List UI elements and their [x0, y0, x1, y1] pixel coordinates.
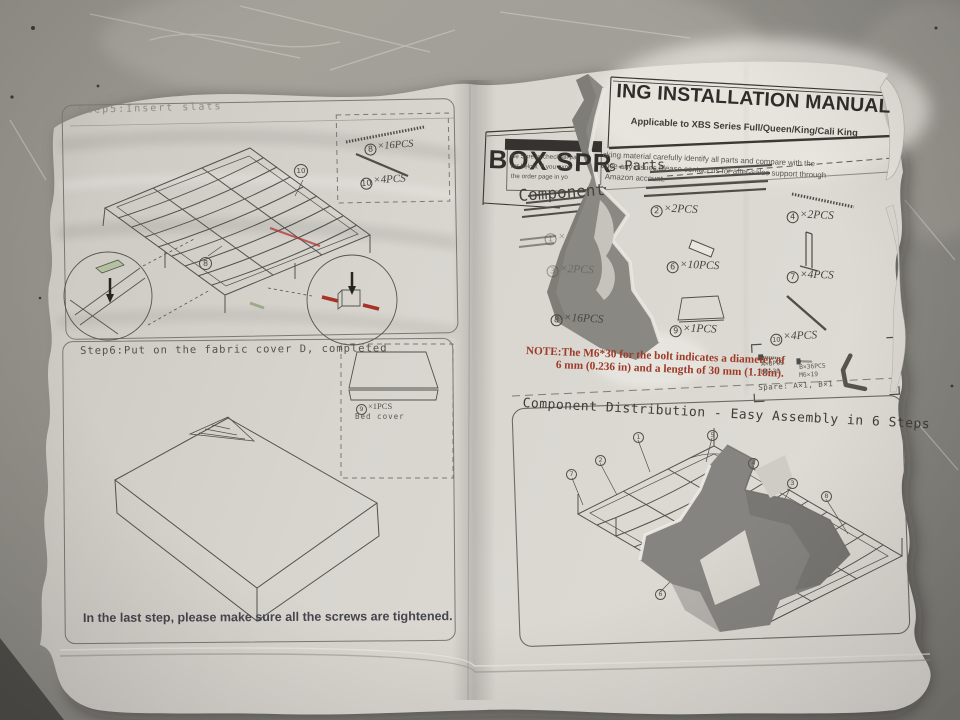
- part-label-10: 10×4PCS: [770, 330, 817, 346]
- circled-number: 7: [787, 271, 799, 283]
- hardware-a-size: M6×30: [761, 369, 780, 376]
- circled-number: 10: [360, 177, 373, 190]
- circled-number: 9: [670, 325, 682, 337]
- circled-number: 10: [770, 334, 782, 346]
- components-heading-right: s-Parts: [608, 159, 665, 174]
- assembly-callout-1: 1: [633, 432, 644, 443]
- part-label-6: 6×10PCS: [666, 259, 719, 275]
- step6-footer-note: In the last step, please make sure all t…: [83, 610, 453, 624]
- part-label-7: 7×4PCS: [787, 269, 834, 285]
- photo-of-installation-manual: Step5:Insert slats 8×16PCS 10×4PCS 10 8 …: [0, 0, 960, 720]
- circled-number: 4: [786, 211, 799, 224]
- assembly-callout-4: 4: [748, 458, 759, 469]
- assembly-callout-6: 6: [655, 589, 666, 600]
- part-qty: ×2PCS: [559, 263, 594, 277]
- circled-number: 8: [550, 314, 563, 327]
- part-qty: ×1PCS: [683, 322, 717, 335]
- assembly-callout-8: 8: [821, 491, 832, 502]
- cover-part-name: Bed cover: [355, 413, 405, 421]
- circled-number: 6: [666, 261, 679, 274]
- part-qty: ×4PCS: [783, 329, 817, 342]
- part-qty: ×16PCS: [377, 139, 414, 153]
- part-qty: ×10PCS: [680, 259, 720, 273]
- circled-number: 3: [546, 265, 559, 278]
- check-reminder-line-1: Be Sure to check all pa: [511, 154, 577, 162]
- circled-number: 2: [650, 205, 663, 218]
- hardware-a-label: A×8PCS: [761, 361, 784, 368]
- check-reminder-line-3: the order page in yo: [511, 174, 568, 181]
- circled-number: 8: [364, 143, 377, 156]
- part-label-2: 2×2PCS: [650, 203, 698, 219]
- part-qty: ×1PCS: [368, 401, 392, 411]
- part-qty: ×: [557, 231, 565, 243]
- assembly-callout-5: 5: [707, 430, 718, 441]
- assembly-callout-2: 2: [595, 455, 606, 466]
- part-qty: ×4PCS: [373, 173, 406, 187]
- step5-part-label-rod-b: 10×4PCS: [360, 174, 406, 190]
- part-qty: ×2PCS: [800, 209, 834, 222]
- part-qty: ×4PCS: [800, 268, 834, 281]
- part-label-8: 8×16PCS: [550, 312, 603, 329]
- step6-heading: Step6:Put on the fabric cover D, complet…: [80, 343, 388, 356]
- assembly-callout-3: 3: [787, 478, 798, 489]
- hardware-b-size: M6×19: [799, 372, 818, 379]
- frame-callout-8: 8: [199, 257, 212, 270]
- check-reminder-line-2: list below. If you expe: [511, 164, 572, 171]
- part-label-9: 9×1PCS: [670, 323, 717, 339]
- part-label-1: 1×: [544, 231, 565, 246]
- part-label-3: 3×2PCS: [546, 263, 594, 279]
- title-fragment-left: BOX SPR: [488, 146, 613, 176]
- part-qty: ×2PCS: [664, 203, 698, 216]
- circled-number: 1: [544, 233, 557, 246]
- assembly-callout-7: 7: [566, 469, 577, 480]
- part-qty: ×16PCS: [563, 312, 603, 326]
- part-label-4: 4×2PCS: [786, 209, 834, 225]
- frame-callout-10: 10: [294, 164, 308, 178]
